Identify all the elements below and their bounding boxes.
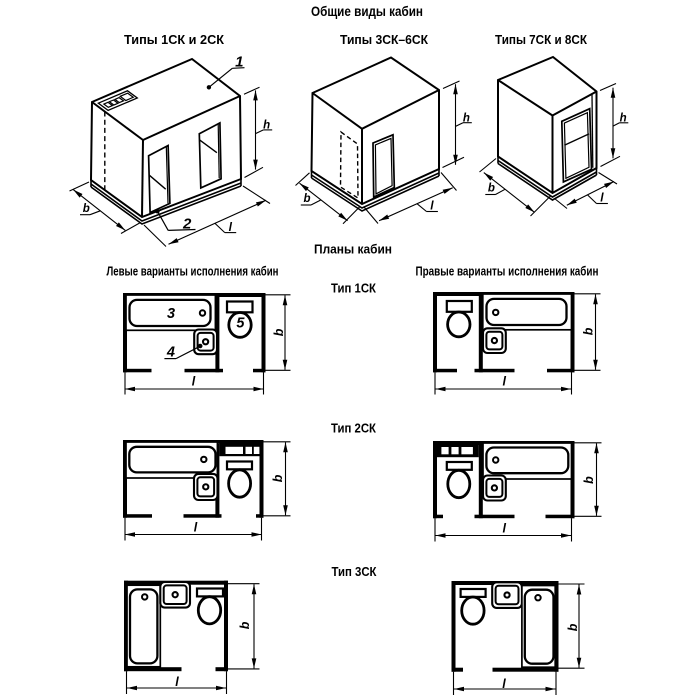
svg-text:Типы 7СК и 8СК: Типы 7СК и 8СК [495, 32, 587, 47]
svg-text:h: h [463, 112, 470, 124]
svg-text:b: b [272, 328, 286, 336]
svg-text:5: 5 [236, 315, 245, 331]
svg-text:b: b [582, 476, 596, 484]
svg-text:l: l [503, 374, 507, 388]
svg-text:Типы 3СК–6СК: Типы 3СК–6СК [340, 32, 428, 47]
svg-text:b: b [566, 623, 580, 631]
svg-text:h: h [263, 120, 270, 132]
svg-text:Типы 1СК и 2СК: Типы 1СК и 2СК [124, 32, 224, 47]
svg-text:b: b [303, 193, 310, 205]
svg-text:Общие виды кабин: Общие виды кабин [311, 4, 423, 19]
svg-text:b: b [582, 327, 596, 335]
svg-text:Тип 3СК: Тип 3СК [332, 564, 377, 579]
svg-text:l: l [502, 677, 506, 691]
svg-text:3: 3 [167, 306, 175, 322]
svg-text:l: l [194, 521, 198, 535]
svg-text:l: l [175, 675, 179, 689]
svg-text:Планы кабин: Планы кабин [314, 242, 392, 257]
svg-text:Правые варианты исполнения каб: Правые варианты исполнения кабин [416, 265, 599, 279]
svg-text:Левые варианты исполнения каби: Левые варианты исполнения кабин [107, 265, 279, 279]
svg-text:h: h [620, 113, 627, 125]
svg-text:Тип 2СК: Тип 2СК [331, 421, 376, 436]
svg-text:b: b [271, 474, 285, 482]
svg-text:l: l [503, 522, 507, 536]
svg-text:b: b [83, 203, 90, 215]
svg-text:Тип 1СК: Тип 1СК [331, 281, 376, 296]
svg-text:b: b [238, 621, 252, 629]
svg-text:l: l [192, 374, 196, 388]
svg-text:b: b [488, 183, 495, 195]
